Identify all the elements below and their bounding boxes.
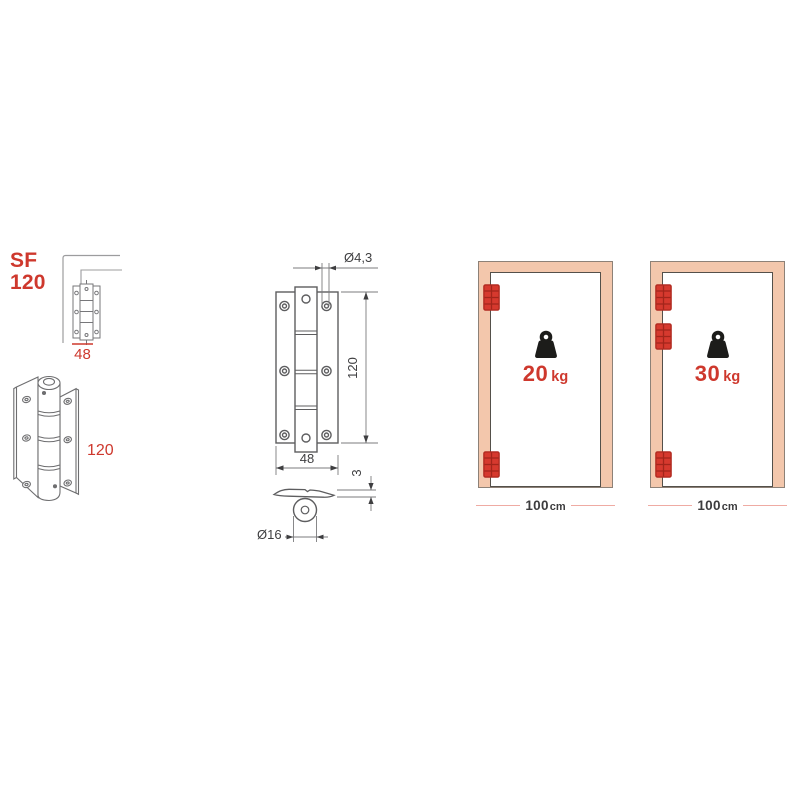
red-hinge-icon bbox=[655, 451, 672, 478]
red-hinge-icon bbox=[655, 284, 672, 311]
hinge-technical-drawing: Ø4,3 120 48 bbox=[245, 243, 390, 553]
door-width-label-1: 100 cm bbox=[478, 497, 613, 513]
door-diagram-1: 20 kg bbox=[478, 261, 613, 488]
product-code-line1: SF bbox=[10, 250, 46, 272]
front-view bbox=[276, 287, 338, 452]
dim-width-label: 48 bbox=[300, 451, 314, 466]
door-width-unit: cm bbox=[550, 501, 566, 513]
dim-height-label: 120 bbox=[345, 357, 360, 379]
door-diagram-2: 30 kg bbox=[650, 261, 785, 488]
hinge-mounting-thumbnail: 48 bbox=[55, 248, 135, 366]
catalog-panel: SF 120 48 bbox=[0, 0, 800, 800]
dim-barrel-diameter-label: Ø16 bbox=[257, 527, 282, 542]
side-view bbox=[274, 489, 334, 521]
width-line-left bbox=[476, 505, 520, 506]
door-width-unit: cm bbox=[722, 501, 738, 513]
red-hinge-icon bbox=[483, 451, 500, 478]
door-leaf: 20 kg bbox=[490, 272, 601, 487]
dim-barrel-diameter: Ø16 bbox=[257, 516, 328, 542]
weight-value: 30 bbox=[695, 361, 720, 387]
width-line-right bbox=[743, 505, 787, 506]
door-edge-line bbox=[81, 270, 122, 285]
kettlebell-weight-icon bbox=[531, 330, 561, 360]
hinge-3d-drawing: 120 bbox=[0, 368, 115, 513]
width-line-right bbox=[571, 505, 615, 506]
door-leaf: 30 kg bbox=[662, 272, 773, 487]
weight-rating: 30 kg bbox=[695, 361, 740, 387]
hinge-3d-barrel bbox=[38, 377, 60, 501]
dim-thickness-label: 3 bbox=[349, 469, 364, 476]
kettlebell-weight-icon bbox=[703, 330, 733, 360]
weight-unit: kg bbox=[723, 369, 740, 385]
hinge-3d-height-label: 120 bbox=[87, 442, 114, 459]
dim-width: 48 bbox=[276, 446, 338, 475]
thumb-width-value: 48 bbox=[74, 346, 91, 363]
thumb-hinge-body bbox=[73, 280, 100, 345]
red-hinge-icon bbox=[655, 323, 672, 350]
weight-rating: 20 kg bbox=[523, 361, 568, 387]
width-line-left bbox=[648, 505, 692, 506]
red-hinge-icon bbox=[483, 284, 500, 311]
weight-unit: kg bbox=[551, 369, 568, 385]
product-code-line2: 120 bbox=[10, 272, 46, 294]
door-width-label-2: 100 cm bbox=[650, 497, 785, 513]
weight-value: 20 bbox=[523, 361, 548, 387]
door-width-value: 100 bbox=[525, 498, 548, 513]
product-code: SF 120 bbox=[10, 250, 46, 294]
hinge-3d-left-plate bbox=[14, 377, 38, 498]
dim-hole-diameter-label: Ø4,3 bbox=[344, 250, 372, 265]
hinge-3d-right-plate bbox=[60, 389, 79, 495]
dim-height: 120 bbox=[341, 292, 378, 443]
dim-thickness: 3 bbox=[337, 469, 376, 511]
door-width-value: 100 bbox=[697, 498, 720, 513]
